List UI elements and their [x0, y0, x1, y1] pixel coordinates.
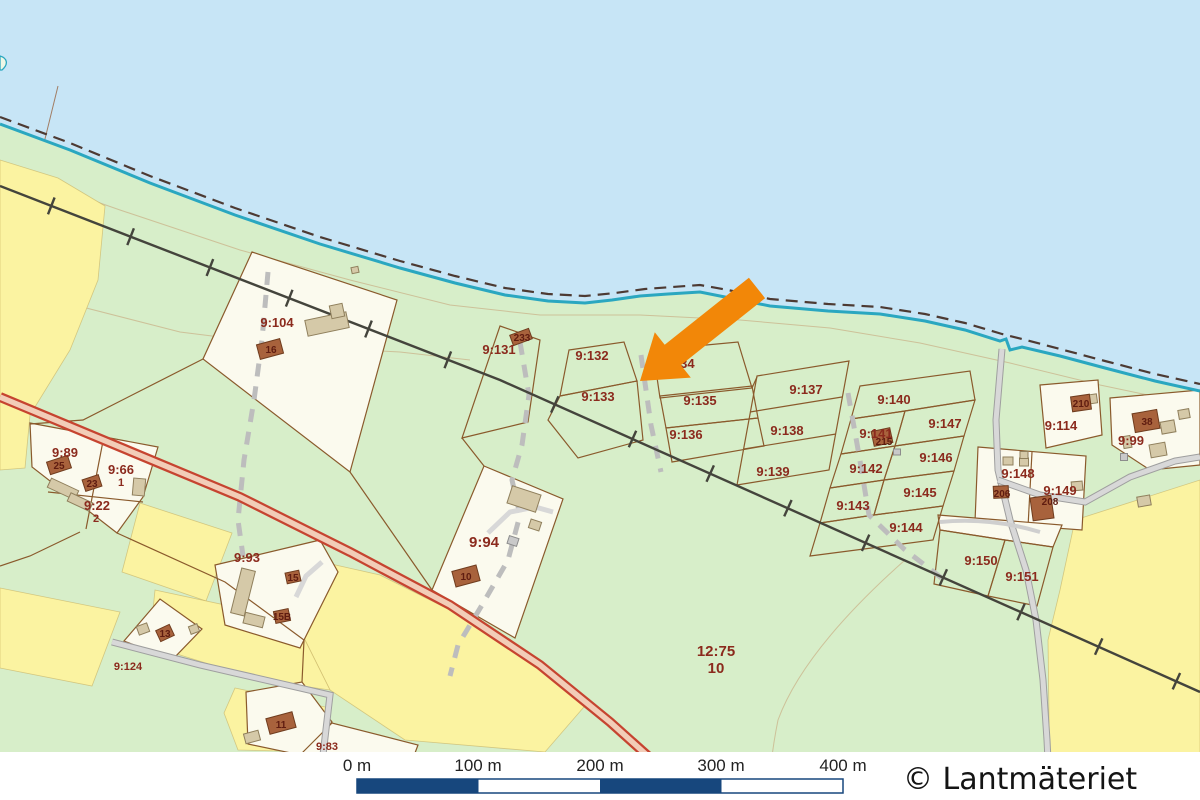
parcel-label-9-136: 9:136 — [669, 427, 702, 442]
parcel-label-9-132: 9:132 — [575, 348, 608, 363]
parcel-label-9-144: 9:144 — [889, 520, 923, 535]
building-label-10: 10 — [460, 572, 472, 583]
building-label-15: 15 — [287, 573, 299, 584]
parcel-label-9-135: 9:135 — [683, 393, 716, 408]
scale-label-0: 0 m — [343, 756, 371, 775]
scale-label-100: 100 m — [454, 756, 501, 775]
parcel-label-9-133: 9:133 — [581, 389, 614, 404]
parcel-label-9-143: 9:143 — [836, 498, 869, 513]
parcel-label-9-83: 9:83 — [316, 741, 338, 753]
parcel-label-9-138: 9:138 — [770, 423, 803, 438]
parcel-label-9-22: 9:22 — [84, 498, 110, 513]
parcel-label-9-124: 9:124 — [114, 661, 143, 673]
parcel-label-12-75: 12:75 — [697, 643, 735, 660]
building-label-208: 208 — [1042, 497, 1059, 508]
building-label-23: 23 — [86, 479, 98, 490]
copyright-text: © Lantmäteriet — [903, 762, 1137, 797]
scale-label-400: 400 m — [819, 756, 866, 775]
parcel-label-9-99: 9:99 — [1118, 433, 1144, 448]
cadastral-map: 9:104 9:131 9:132 9:133 9:134 9:135 9:13… — [0, 0, 1200, 800]
parcel-label-9-142: 9:142 — [849, 461, 882, 476]
bottom-bar: 0 m 100 m 200 m 300 m 400 m © Lantmäteri… — [0, 752, 1200, 800]
building-label-233: 233 — [514, 333, 531, 344]
parcel-label-9-150: 9:150 — [964, 553, 997, 568]
building-label-210: 210 — [1073, 399, 1090, 410]
parcel-label-9-147: 9:147 — [928, 416, 961, 431]
parcel-label-9-139: 9:139 — [756, 464, 789, 479]
parcel-label-9-146: 9:146 — [919, 450, 952, 465]
parcel-label-9-149: 9:149 — [1043, 483, 1076, 498]
map-canvas: 9:104 9:131 9:132 9:133 9:134 9:135 9:13… — [0, 0, 1200, 800]
parcel-label-9-148: 9:148 — [1001, 466, 1034, 481]
building-label-11: 11 — [276, 720, 287, 731]
parcel-label-9-94: 9:94 — [469, 534, 500, 551]
building-label-206: 206 — [994, 489, 1011, 500]
parcel-label-9-89: 9:89 — [52, 445, 78, 460]
parcel-label-9-22-unit: 2 — [93, 513, 99, 525]
parcel-label-12-75-unit: 10 — [708, 660, 725, 677]
parcel-label-9-137: 9:137 — [789, 382, 822, 397]
parcel-label-9-131: 9:131 — [482, 342, 515, 357]
parcel-label-9-140: 9:140 — [877, 392, 910, 407]
parcel-label-9-93: 9:93 — [234, 550, 260, 565]
parcel-label-9-104: 9:104 — [260, 315, 294, 330]
building-label-25: 25 — [53, 461, 65, 472]
parcel-label-9-151: 9:151 — [1005, 569, 1038, 584]
parcel-label-9-114: 9:114 — [1045, 418, 1078, 433]
building-label-38: 38 — [1141, 417, 1153, 428]
parcel-label-9-66-unit: 1 — [118, 477, 124, 489]
parcel-label-9-145: 9:145 — [903, 485, 936, 500]
scale-label-200: 200 m — [576, 756, 623, 775]
building-label-15b: 15B — [273, 612, 291, 623]
building-label-215: 215 — [876, 437, 893, 448]
scale-label-300: 300 m — [697, 756, 744, 775]
building-label-16: 16 — [265, 345, 277, 356]
building-label-13: 13 — [159, 629, 171, 640]
parcel-label-9-66: 9:66 — [108, 462, 134, 477]
